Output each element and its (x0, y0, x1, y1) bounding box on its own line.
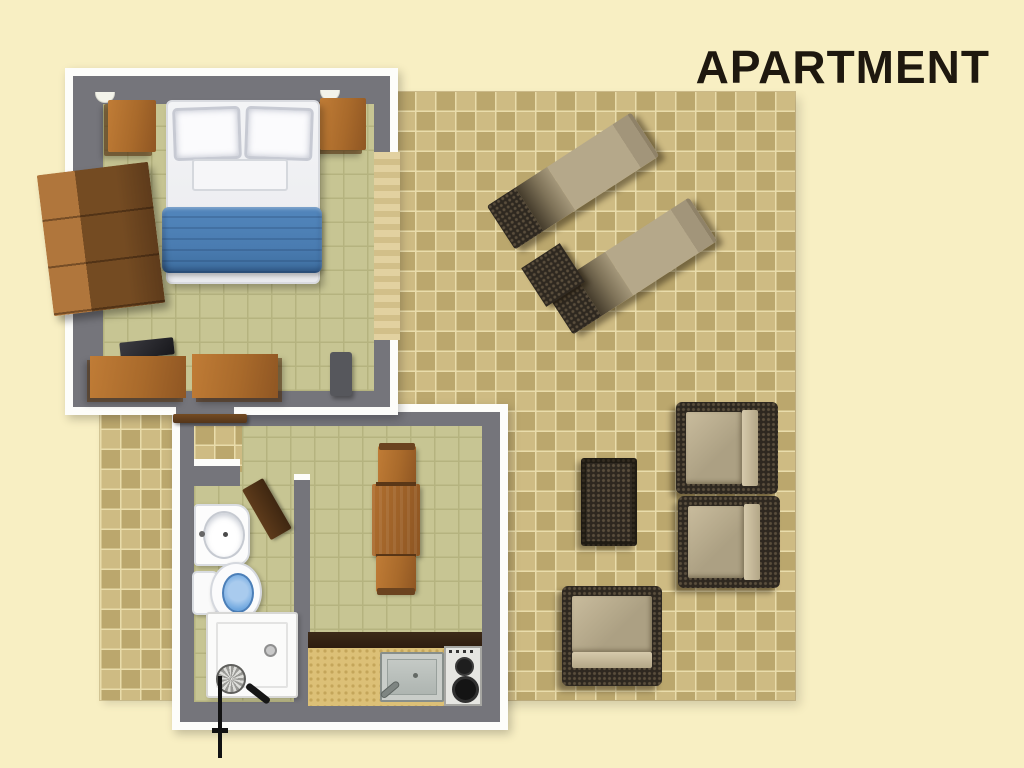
stove-icon (444, 646, 482, 706)
wicker-coffee-table-icon (581, 458, 637, 546)
wardrobe-icon (37, 162, 165, 317)
apartment-floor-plan: APARTMENT (0, 0, 1024, 768)
shower-drain (264, 644, 277, 657)
armchair-cushion (688, 506, 744, 578)
bathroom-wall-cap (194, 459, 240, 466)
sun-lounger-icon (487, 112, 660, 249)
desk-icon (90, 356, 186, 398)
pillow-icon (172, 106, 242, 161)
washbasin-icon (194, 504, 250, 566)
page-title: APARTMENT (696, 40, 990, 94)
nightstand-icon (320, 98, 366, 150)
armchair-cushion (572, 596, 652, 652)
living-kitchen-bathroom-unit (172, 404, 508, 730)
armchair-backrest (742, 410, 758, 486)
double-bed-icon (166, 100, 320, 284)
armchair-backrest (744, 504, 760, 580)
washbasin-faucet (199, 531, 205, 537)
dining-chair-icon (378, 446, 416, 484)
chair-icon (330, 352, 352, 396)
armchair-backrest (572, 652, 652, 668)
kitchen-sink-icon (380, 652, 444, 702)
armchair-cushion (686, 412, 742, 484)
stove-burner-large (452, 676, 479, 703)
shower-riser-pipe (218, 676, 222, 758)
blue-blanket (162, 207, 322, 273)
armchair-icon (678, 496, 780, 588)
terrace-door-threshold (374, 152, 400, 340)
dining-table-icon (372, 484, 420, 556)
bench-icon (192, 354, 278, 398)
armchair-icon (676, 402, 778, 494)
dining-chair-icon (376, 556, 416, 592)
bedroom-unit (65, 68, 398, 415)
washbasin-drain (223, 532, 228, 537)
bathroom-top-wall (194, 466, 240, 486)
kitchen-sink-basin (387, 659, 437, 695)
nightstand-icon (108, 100, 156, 152)
open-door-icon (173, 414, 247, 423)
toilet-icon (192, 562, 258, 618)
sheet-fold (192, 159, 288, 191)
armchair-icon (562, 586, 662, 686)
toilet-lid (222, 573, 254, 613)
stove-burner-small (455, 657, 474, 676)
stove-controls (449, 650, 475, 653)
pillow-icon (244, 106, 314, 161)
